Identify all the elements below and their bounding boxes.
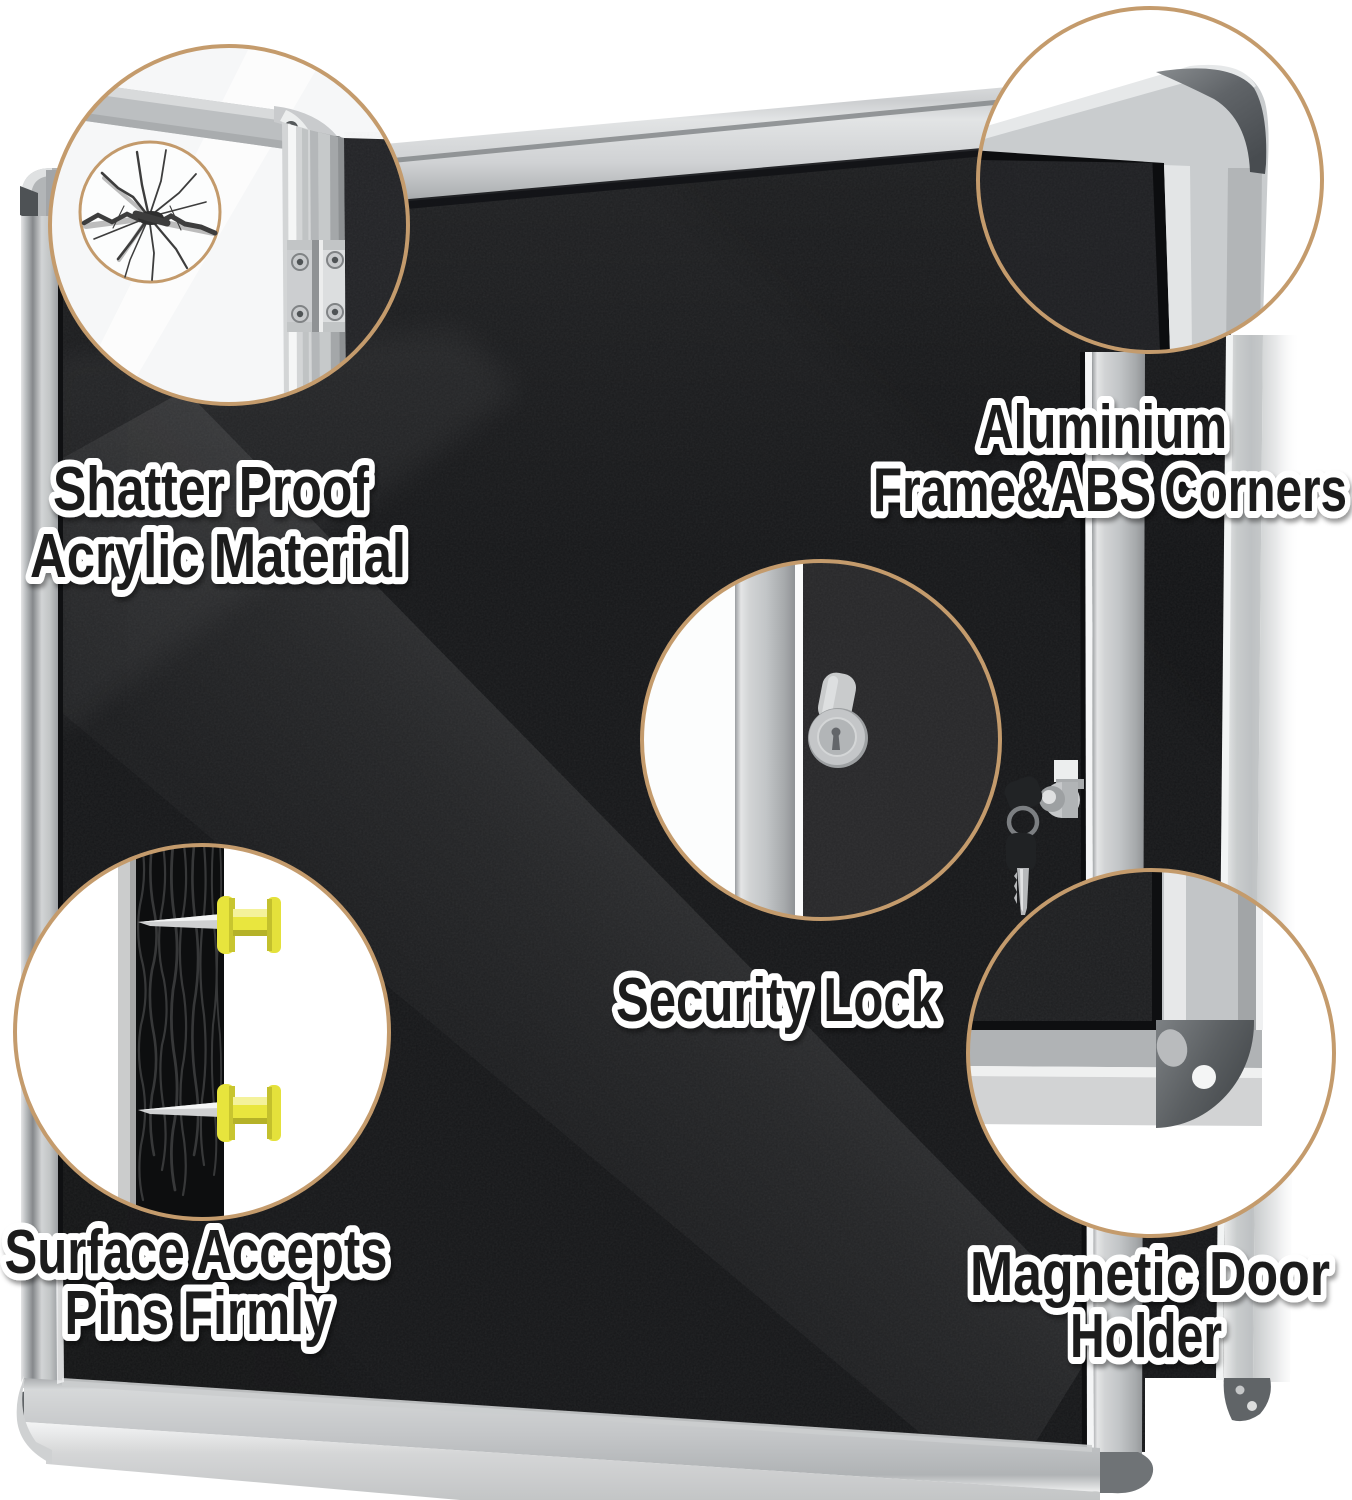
svg-text:Pins Firmly: Pins Firmly [65, 1279, 332, 1348]
svg-text:Frame&ABS Corners: Frame&ABS Corners [873, 456, 1347, 525]
svg-text:Holder: Holder [1070, 1302, 1222, 1371]
svg-text:Aluminium: Aluminium [979, 393, 1227, 462]
svg-text:Acrylic Material: Acrylic Material [30, 522, 406, 591]
svg-text:Security Lock: Security Lock [616, 966, 938, 1035]
svg-text:Surface Accepts: Surface Accepts [5, 1218, 388, 1287]
svg-text:Shatter Proof: Shatter Proof [53, 455, 369, 524]
svg-text:Magnetic Door: Magnetic Door [970, 1240, 1330, 1309]
